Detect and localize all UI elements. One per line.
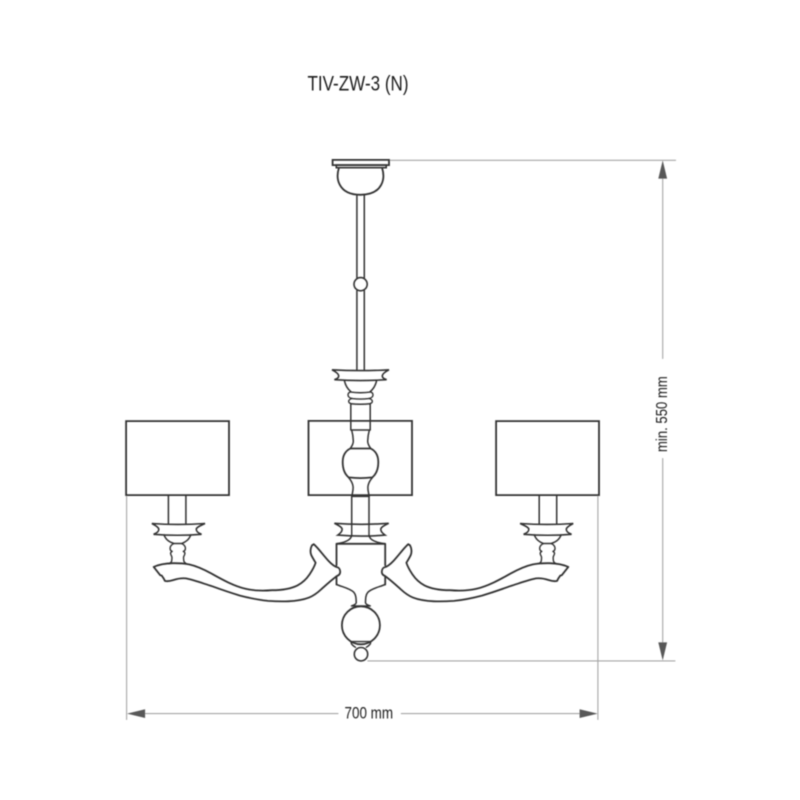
svg-text:700 mm: 700 mm (345, 704, 394, 723)
svg-text:min. 550 mm: min. 550 mm (654, 376, 671, 452)
svg-text:TIV-ZW-3 (N): TIV-ZW-3 (N) (307, 73, 408, 96)
